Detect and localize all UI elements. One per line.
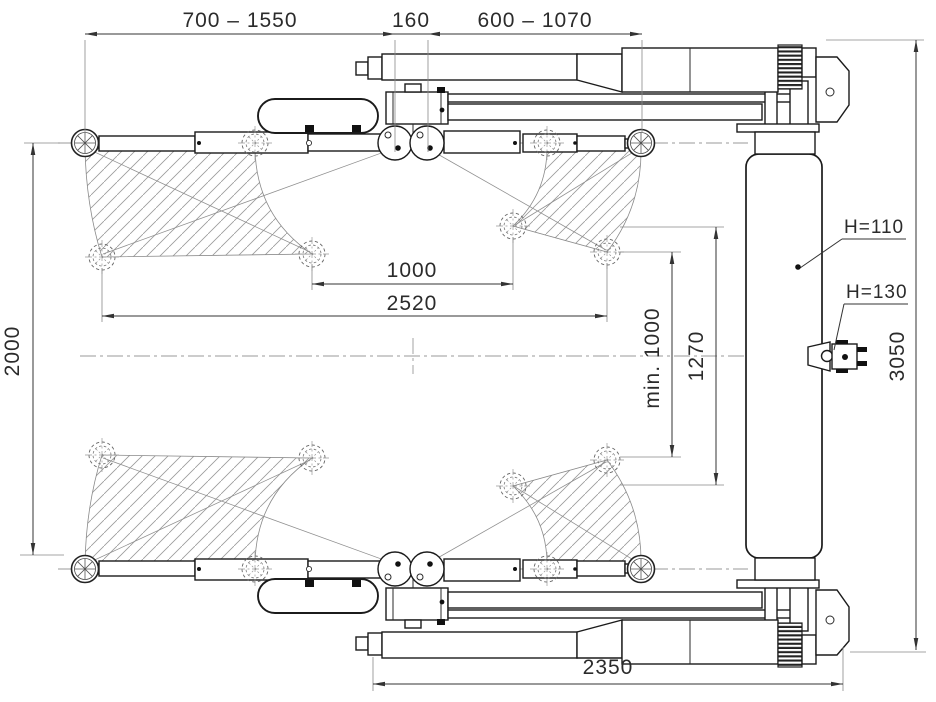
pad-height-adapter-label: H=130: [846, 282, 908, 303]
dim-arm-reach-short-label: 600 – 1070: [477, 9, 592, 32]
clamp-fixture: [808, 340, 867, 373]
dim-pad-span-outer-label: 2520: [387, 292, 438, 315]
swing-area-top: [85, 148, 641, 257]
dim-overall-length-label: 3050: [886, 331, 909, 382]
dim-pickup-spacing-label: 160: [392, 9, 430, 32]
lift-technical-drawing: 700 – 1550 160 600 – 1070 1000 2520 2000…: [0, 0, 936, 702]
dim-bay-depth-label: 1270: [685, 331, 708, 382]
dim-swing-width-label: 2000: [1, 326, 24, 377]
drawing-canvas: 700 – 1550 160 600 – 1070 1000 2520 2000…: [0, 0, 936, 702]
dim-pad-span-inner-label: 1000: [387, 259, 438, 282]
dim-arm-reach-long-label: 700 – 1550: [182, 9, 297, 32]
pad-height-main-label: H=110: [844, 217, 904, 238]
dim-min-clearance-label: min. 1000: [641, 307, 664, 408]
swing-area-bottom: [85, 455, 641, 564]
dim-base-length-label: 2350: [583, 656, 634, 679]
